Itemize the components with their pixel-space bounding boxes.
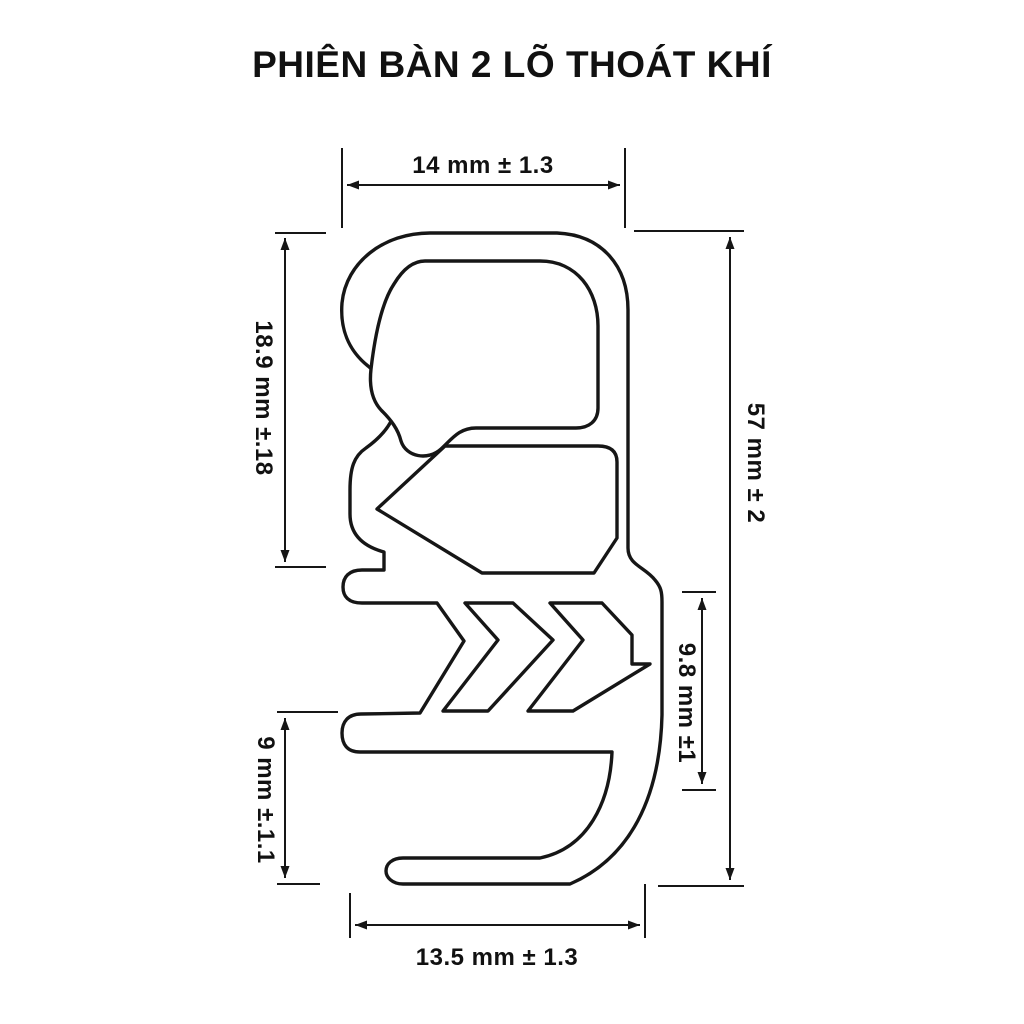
dimension-label: 14 mm ± 1.3 (412, 152, 553, 179)
dim-top-width: 14 mm ± 1.3 (342, 148, 625, 228)
dimension-label: 9 mm ±.1.1 (252, 736, 279, 864)
technical-drawing: 14 mm ± 1.3 18.9 mm ±.18 57 mm ± 2 9.8 m… (0, 0, 1024, 1024)
profile-hole-top-bulb (370, 261, 598, 456)
gasket-profile (342, 233, 662, 884)
dimension-label: 57 mm ± 2 (742, 403, 769, 523)
dimension-label: 9.8 mm ±1 (673, 643, 700, 763)
dimension-label: 13.5 mm ± 1.3 (416, 944, 578, 971)
dimension-label: 18.9 mm ±.18 (250, 320, 277, 475)
dim-left-upper-height: 18.9 mm ±.18 (250, 233, 326, 567)
dim-right-overall-height: 57 mm ± 2 (634, 231, 769, 886)
dim-bottom-width: 13.5 mm ± 1.3 (350, 884, 645, 971)
dim-left-lower-height: 9 mm ±.1.1 (252, 712, 338, 884)
dim-right-inner-height: 9.8 mm ±1 (673, 592, 716, 790)
diagram-page: PHIÊN BÀN 2 LÕ THOÁT KHÍ 14 mm ± 1.3 (0, 0, 1024, 1024)
